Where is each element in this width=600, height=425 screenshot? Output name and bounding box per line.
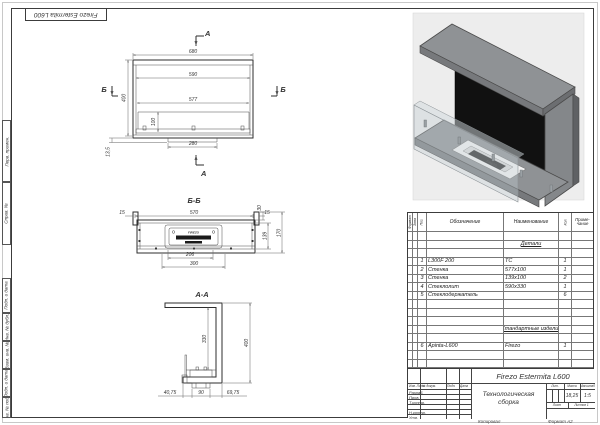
tb-scale-value: 1:5 bbox=[580, 393, 595, 399]
section-aa-view: А-А 330 400 40,75 90 69,75 bbox=[140, 285, 280, 405]
dim-40-75: 40,75 bbox=[164, 390, 177, 396]
margin-label: Справ. № bbox=[4, 203, 9, 223]
spec-table: Формат Зона Поз. Обозначение Наименовани… bbox=[407, 212, 594, 368]
dim-15-right: 15 bbox=[264, 210, 270, 216]
top-stamp-label: Firezo Estermita L600 bbox=[34, 11, 98, 18]
dim-69-75: 69,75 bbox=[227, 390, 240, 396]
burner-brand: FIREZO bbox=[188, 231, 200, 235]
tb-lit-label: Лит. bbox=[546, 384, 564, 388]
dim-170: 170 bbox=[277, 229, 283, 238]
drawing-sheet: { "page": { "stamp_top": "Firezo Estermi… bbox=[0, 0, 600, 425]
dim-30: 30 bbox=[257, 205, 263, 211]
dim-13-5: 13,5 bbox=[106, 147, 112, 157]
tb-scale-label: Масштаб bbox=[580, 384, 595, 388]
dim-90: 90 bbox=[198, 390, 204, 396]
top-stamp: Firezo Estermita L600 bbox=[25, 8, 107, 21]
dim-330: 330 bbox=[202, 335, 208, 344]
tb-mass-value: 18,25 bbox=[564, 393, 580, 399]
tb-mass-label: Масса bbox=[564, 384, 580, 388]
spec-header-note: Приме-чание bbox=[572, 213, 593, 232]
section-bb-title: Б-Б bbox=[187, 196, 201, 205]
section-mark-a-bottom: А bbox=[200, 169, 206, 178]
dim-590: 590 bbox=[189, 72, 198, 78]
dim-139: 139 bbox=[263, 232, 269, 241]
front-view: 680 590 577 100 400 13,5 280 А А Б Б bbox=[95, 28, 310, 188]
margin-box-vzam: Взам. инв. № bbox=[2, 341, 11, 369]
dim-577: 577 bbox=[189, 97, 198, 103]
title-block: Firezo Estermita L600 Изм. Лист № докум.… bbox=[407, 368, 594, 418]
tb-sheet-label: Лист bbox=[547, 403, 567, 407]
section-mark-a-top: А bbox=[204, 29, 210, 38]
section-mark-b-left: Б bbox=[101, 85, 107, 94]
tb-role-tkontr: Т.контр. bbox=[409, 400, 425, 405]
footer-format: Формат А2 bbox=[548, 419, 573, 424]
dim-680: 680 bbox=[189, 49, 198, 55]
margin-label: Инв. № подл. bbox=[4, 397, 9, 418]
spec-group-details: Детали bbox=[504, 241, 559, 250]
isometric-view: FIREZO bbox=[400, 10, 590, 202]
margin-box-invdubl: Инв. № дубл. bbox=[2, 313, 11, 341]
margin-box-podp1: Подп. и дата bbox=[2, 278, 11, 313]
section-aa-title: А-А bbox=[194, 290, 208, 299]
margin-box-perv: Перв. примен. bbox=[2, 120, 11, 182]
spec-header-qty: Кол. bbox=[559, 213, 572, 232]
spec-header-poz: Поз. bbox=[418, 213, 427, 232]
spec-header-naim: Наименование bbox=[504, 213, 559, 232]
margin-label: Подп. и дата bbox=[4, 281, 9, 309]
margin-label: Взам. инв. № bbox=[4, 341, 9, 369]
margin-label: Инв. № дубл. bbox=[4, 313, 9, 341]
section-bb-view: Б-Б FIREZO 570 15 15 30 139 170 206 300 bbox=[105, 192, 290, 282]
dim-15-left: 15 bbox=[119, 210, 125, 216]
dim-570: 570 bbox=[190, 210, 199, 216]
tb-role-utv: Утв. bbox=[409, 415, 418, 420]
margin-label: Подп. и дата bbox=[4, 369, 9, 397]
spec-group-standard: Стандартные изделия bbox=[504, 326, 559, 335]
dim-280: 280 bbox=[188, 141, 198, 147]
dim-400: 400 bbox=[244, 339, 250, 348]
tb-col-podp: Подп. bbox=[447, 384, 455, 388]
margin-box-sprav: Справ. № bbox=[2, 182, 11, 245]
tb-col-doc: № докум. bbox=[422, 384, 436, 388]
spec-header-oboz: Обозначение bbox=[427, 213, 504, 232]
margin-box-invpodl: Инв. № подл. bbox=[2, 397, 11, 418]
margin-label: Перв. примен. bbox=[4, 136, 9, 166]
tb-col-data: Дата bbox=[460, 384, 468, 388]
titleblock-designation: Firezo Estermita L600 bbox=[471, 372, 595, 381]
margin-box-podp2: Подп. и дата bbox=[2, 369, 11, 397]
dim-206: 206 bbox=[185, 252, 195, 258]
footer-copied: Копировал bbox=[478, 419, 500, 424]
tb-sheets-label: Листов 1 bbox=[569, 403, 594, 407]
dim-100: 100 bbox=[151, 118, 157, 127]
section-mark-b-right: Б bbox=[280, 85, 286, 94]
dim-300: 300 bbox=[190, 261, 199, 267]
dim-400: 400 bbox=[122, 94, 128, 103]
titleblock-doc-name: Технологическаясборка bbox=[471, 391, 546, 406]
